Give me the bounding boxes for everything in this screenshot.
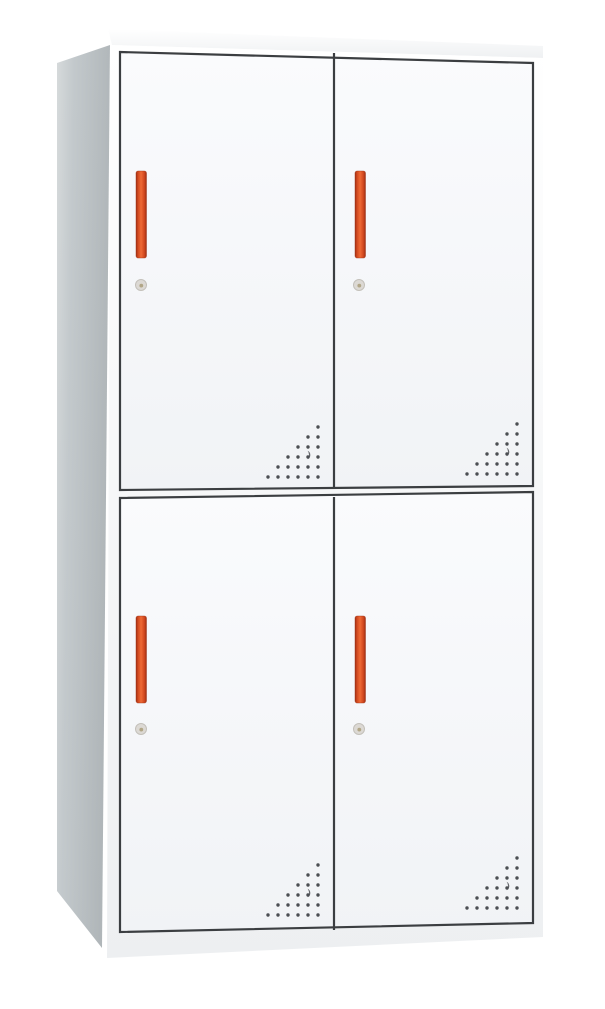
door-handle <box>355 616 366 703</box>
keyhole-lock <box>136 280 147 291</box>
product-photo <box>0 0 605 1009</box>
upper-tier <box>120 52 533 490</box>
keyhole-lock <box>354 280 365 291</box>
keyhole-lock <box>354 724 365 735</box>
upper-door-panels <box>120 52 533 490</box>
lower-door-panels <box>120 492 533 932</box>
keyhole-lock <box>136 724 147 735</box>
door-handle <box>355 171 366 258</box>
door-handle <box>136 616 147 703</box>
cabinet-side-panel <box>57 45 110 948</box>
locker-cabinet-illustration <box>0 0 605 1009</box>
lower-tier <box>120 492 533 932</box>
door-handle <box>136 171 147 258</box>
